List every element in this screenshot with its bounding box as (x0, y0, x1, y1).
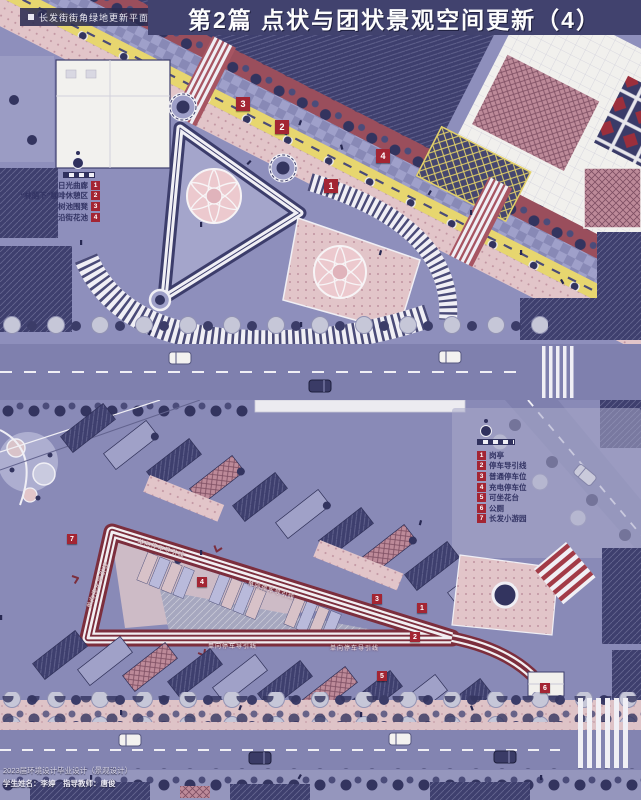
legend-item: 7长发小游园 (477, 514, 527, 525)
car (249, 752, 271, 764)
legend-item: 树池围凳3 (0, 201, 100, 212)
plan-marker: 4 (376, 149, 390, 163)
legend-item: 6公厕 (477, 503, 527, 514)
legend-item: 日光曲廊1 (0, 180, 100, 191)
legend-item: “林荫下”咖啡休憩区2 (0, 191, 100, 202)
north-arrow-icon (71, 151, 85, 170)
top-plan-label-text: 长发街街角绿地更新平面图 (39, 11, 159, 24)
building-block (230, 784, 310, 800)
legend-item: 1岗亭 (477, 450, 527, 461)
building-block (597, 232, 641, 340)
credit-line-names: 学生姓名：李婷 指导教师：唐俊 (3, 777, 132, 790)
bottom-plan-drawing (0, 400, 641, 800)
plan-marker: 4 (197, 577, 207, 587)
plan-marker: 2 (275, 120, 289, 134)
building-block (180, 786, 210, 798)
north-arrow-icon (479, 419, 493, 438)
plan-marker: 3 (236, 97, 250, 111)
plan-marker: 5 (377, 671, 387, 681)
flow-direction-label: 单向停车导引线 (330, 643, 379, 652)
car (389, 733, 411, 745)
legend-item: 3普通停车位 (477, 471, 527, 482)
plan-marker: 1 (417, 603, 427, 613)
scale-bar (477, 439, 515, 445)
car (494, 751, 516, 763)
credit-line-thesis: 2023届环境设计毕业设计（景观设计） (3, 764, 132, 777)
tree-pool-node (170, 94, 196, 120)
scale-bar (63, 172, 95, 178)
legend-item: 沿街花池4 (0, 212, 100, 223)
blossom-tree (187, 169, 241, 223)
legend-item: 5可坐花台 (477, 492, 527, 503)
credits-block: 2023届环境设计毕业设计（景观设计） 学生姓名：李婷 指导教师：唐俊 (3, 764, 132, 790)
pink-building (584, 168, 641, 228)
plan-marker: 6 (540, 683, 550, 693)
top-plan-legend: 日光曲廊1 “林荫下”咖啡休憩区2 树池围凳3 沿街花池4 (0, 180, 100, 222)
top-plan-label: 长发街街角绿地更新平面图 (20, 8, 167, 26)
bottom-plan-legend: 1岗亭 2停车导引线 3普通停车位 4充电停车位 5可坐花台 6公厕 7长发小游… (477, 450, 527, 524)
legend-item: 4充电停车位 (477, 482, 527, 493)
tree-pool-node (150, 290, 170, 310)
street-tree-row (0, 312, 548, 342)
bullet-square-icon (28, 14, 34, 20)
flow-direction-label: 单向停车导引线 (208, 641, 257, 650)
poster-board: 第2篇 点状与团状景观空间更新（4） 长发街街角绿地更新平面图 日光曲廊1 “林… (0, 0, 641, 800)
page-title: 第2篇 点状与团状景观空间更新（4） (188, 1, 601, 35)
header-bar: 第2篇 点状与团状景观空间更新（4） (148, 0, 641, 35)
plan-marker: 3 (372, 594, 382, 604)
circular-planter (493, 583, 517, 607)
car (119, 734, 141, 746)
building-block (602, 548, 641, 644)
building-block (430, 782, 530, 800)
blossom-tree (314, 246, 366, 298)
car (169, 352, 191, 364)
car (309, 380, 331, 392)
legend-item: 2停车导引线 (477, 461, 527, 472)
tree-pool-node (270, 155, 296, 181)
car (439, 351, 461, 363)
building-sliver (255, 400, 465, 412)
plan-marker: 1 (324, 179, 338, 193)
plan-marker: 2 (410, 632, 420, 642)
plan-marker: 7 (67, 534, 77, 544)
